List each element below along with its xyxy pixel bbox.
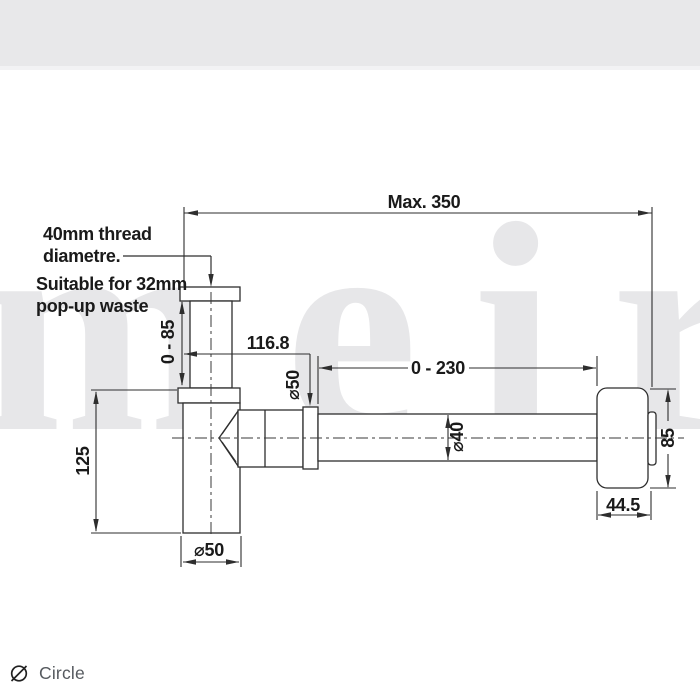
product-dimension-page: meir xyxy=(0,0,700,700)
waste-note-line2: pop-up waste xyxy=(36,296,149,316)
annotation-notes: 40mm thread diametre. Suitable for 32mm … xyxy=(36,224,187,316)
dim-overall-length: Max. 350 xyxy=(388,192,461,212)
dim-inlet-adjust: 0 - 85 xyxy=(158,320,178,365)
dim-body-height: 125 xyxy=(73,446,93,475)
dim-nut-diameter: ⌀50 xyxy=(283,370,303,400)
dim-flange-depth: 44.5 xyxy=(606,495,640,515)
dim-outlet-adjust: 0 - 230 xyxy=(411,358,465,378)
dimension-lines xyxy=(91,207,676,567)
thread-note-line1: 40mm thread xyxy=(43,224,152,244)
dim-body-diameter: ⌀50 xyxy=(194,540,224,560)
bottle-trap-dimension-drawing: 40mm thread diametre. Suitable for 32mm … xyxy=(0,0,700,700)
dim-inlet-offset: 116.8 xyxy=(247,333,290,353)
thread-note-line2: diametre. xyxy=(43,246,120,266)
dim-flange-size: 85 xyxy=(658,428,678,448)
dimension-labels: Max. 350 116.8 0 - 230 44.5 ⌀50 0 - 85 ⌀… xyxy=(73,192,678,560)
spec-footer-label: Circle xyxy=(39,663,85,684)
spec-footer: Circle xyxy=(8,662,85,684)
trap-outline xyxy=(178,287,656,533)
waste-note-line1: Suitable for 32mm xyxy=(36,274,187,294)
dim-pipe-diameter: ⌀40 xyxy=(447,422,467,452)
diameter-symbol-icon xyxy=(8,662,30,684)
body-collar xyxy=(178,388,240,403)
inlet-flange xyxy=(180,287,240,301)
